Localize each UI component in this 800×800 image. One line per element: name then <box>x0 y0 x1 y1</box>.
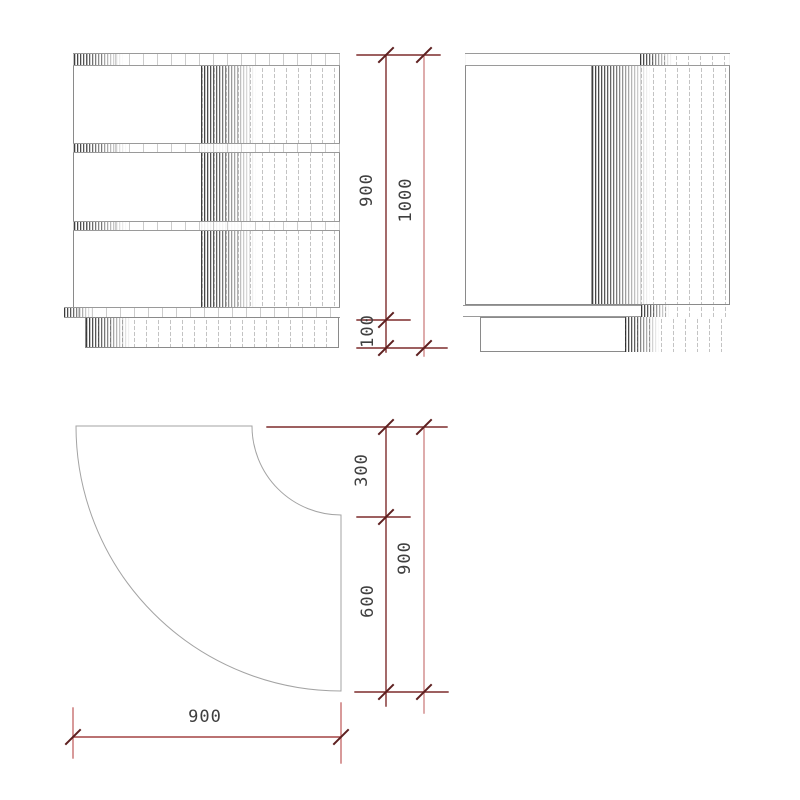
dimension-overlay: 900 1000 100 300 600 900 90 <box>0 0 800 800</box>
dimension-label-plan-depth: 900 <box>395 541 415 575</box>
dimension-label-side-straight: 600 <box>358 584 378 618</box>
plan-view <box>76 426 341 691</box>
dimension-label-total-height: 1000 <box>396 178 416 223</box>
plan-counter-outline <box>76 426 341 691</box>
height-dimension-group: 900 1000 100 <box>357 48 447 356</box>
dimension-label-corner-radius: 300 <box>352 453 372 487</box>
dimension-label-plan-width: 900 <box>188 707 222 727</box>
dimension-label-plinth-height: 100 <box>358 314 378 348</box>
dimension-label-cabinet-height: 900 <box>357 173 377 207</box>
width-dimension-group: 900 <box>66 703 348 763</box>
technical-drawing-canvas: 900 1000 100 300 600 900 90 <box>0 0 800 800</box>
